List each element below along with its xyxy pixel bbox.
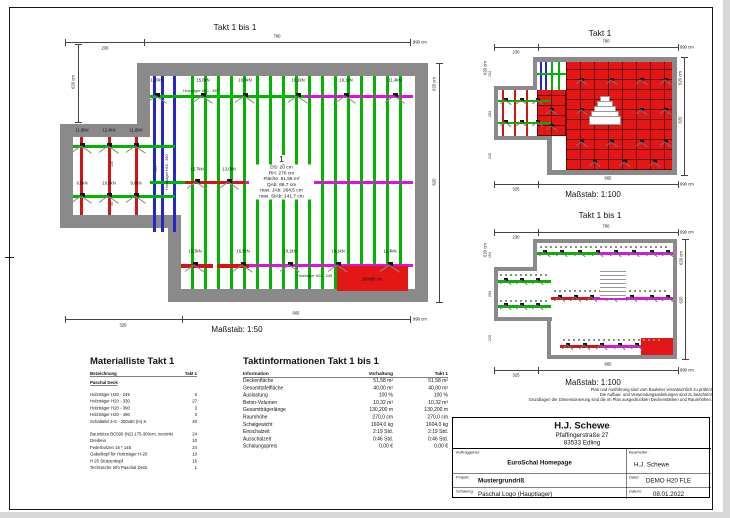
plan-sheet: { "colors":{"green":"#00b400","blue":"#2… (0, 0, 730, 518)
prop-symbol (618, 343, 622, 346)
prop-symbol (536, 98, 540, 101)
dim-tick (682, 239, 689, 240)
load-label: 19,1kN (331, 249, 344, 253)
micro-text-strip (500, 300, 550, 302)
dim-tick (494, 44, 495, 51)
info-cell: Schalgewicht (243, 421, 338, 428)
load-label: 15,3kN (188, 249, 201, 253)
load-label: 15,0kN (196, 78, 209, 82)
dim-tick (538, 229, 539, 236)
dim-label: 325 (513, 373, 520, 377)
field-label: Schalung: (456, 489, 474, 494)
dim-label: 230 (102, 46, 109, 50)
dim-tick (494, 181, 495, 188)
prop-symbol (520, 98, 524, 101)
scale-label: Maßstab: 1:100 (488, 378, 698, 387)
dim-label: 154 (154, 166, 158, 172)
info-cell: 100 % (393, 392, 448, 399)
beam (153, 76, 156, 232)
load-label: 16,9kN (236, 249, 249, 253)
prop-symbol (107, 143, 112, 147)
dim-tick (436, 302, 443, 303)
dim-tick (678, 229, 679, 236)
dim-label: 620 (432, 179, 436, 186)
table-header: InformationVorhaltungTakt 1 (243, 371, 448, 378)
dim-tick (75, 44, 82, 45)
prop-symbol (336, 262, 341, 266)
load-label: 19,1kN (339, 78, 352, 82)
material-qty: 27 (192, 398, 197, 405)
info-block: 1DS: 20 cmRH: 270 cmFläche: 51,58 m²QAb:… (249, 155, 314, 199)
info-cell: 0:46 Std. (393, 436, 448, 443)
prop-symbol (107, 193, 112, 197)
prop-symbol (550, 124, 554, 127)
info-row: Ausschalzeit0:46 Std.0:46 Std. (243, 436, 448, 443)
load-label: 11,6kN (76, 128, 89, 132)
prop-symbol (650, 295, 654, 298)
dim-line (439, 63, 440, 302)
prop-symbol (580, 78, 584, 81)
field-label: Projekt: (456, 475, 470, 480)
prop-symbol (195, 179, 200, 183)
info-cell: Raumhöhe (243, 414, 338, 421)
micro-text-strip (563, 339, 663, 341)
load-label: 11,4kN (389, 78, 402, 82)
material-name: Schaltafel 3-S - 200x50 (m) K (90, 418, 146, 425)
dim-label: 990 cm (680, 230, 694, 234)
dim-label: 90 (110, 202, 114, 206)
info-cell: Einschalzeit (243, 429, 338, 436)
beam (526, 90, 528, 136)
dim-label: 665 (605, 362, 612, 366)
info-cell: Gesamttafelfläche (243, 385, 338, 392)
material-name: H 20 Stützenkopf (90, 458, 123, 465)
prop-symbol (650, 250, 654, 253)
material-row: Baustütze BC500 (N2) 175-300cm, verzinkt… (90, 431, 197, 438)
load-label: 13,0kN (222, 167, 235, 171)
dim-label: 230 (513, 50, 520, 54)
info-cell: 270,0 cm (338, 414, 393, 421)
wall (533, 239, 677, 243)
prop-symbol (664, 108, 668, 111)
dim-line (494, 232, 678, 233)
wall (494, 86, 498, 140)
prop-symbol (504, 303, 508, 306)
wall (533, 239, 537, 271)
prop-symbol (193, 262, 198, 266)
column-header: Takt 1 (185, 371, 197, 377)
prop-symbol (635, 343, 639, 346)
prop-symbol (536, 120, 540, 123)
prop-symbol (580, 140, 584, 143)
dim-label: 220 (488, 335, 492, 341)
material-qty: 3 (195, 412, 197, 419)
dim-label: 990 cm (680, 45, 694, 49)
dim-label: 760 (603, 39, 610, 43)
dim-line (65, 319, 410, 320)
dim-tick (436, 63, 443, 64)
field-value: Mustergrundriß (478, 477, 524, 484)
prop-symbol (558, 295, 562, 298)
prop-symbol (664, 140, 668, 143)
field-value: 08.01.2022 (626, 491, 711, 498)
dim-label: 230 (513, 235, 520, 239)
dim-tick (682, 359, 689, 360)
beam (173, 76, 176, 232)
dim-label: 760 (274, 34, 281, 38)
beam (558, 62, 560, 90)
info-row: Raumhöhe270,0 cm270,0 cm (243, 414, 448, 421)
wall (547, 355, 677, 359)
company-city: 83533 Edling (453, 439, 711, 446)
micro-text-strip (540, 246, 670, 248)
prop-symbol (520, 303, 524, 306)
material-name: Holzträger H20 - 330 (90, 398, 130, 405)
info-row: Gesamtträgerlänge130,200 m130,200 m (243, 407, 448, 414)
material-name: Technische Info Paschal Deck (90, 465, 147, 472)
prop-symbol (155, 93, 160, 97)
scale-label: Maßstab: 1:50 (55, 325, 419, 334)
beam (502, 90, 504, 136)
material-name: Holzträger H20 - 490 (90, 412, 130, 419)
beam (551, 62, 553, 90)
beam-label: Holzträger H20 - 390 (165, 154, 169, 189)
field-value: DEMO H20 FLE (626, 477, 711, 484)
info-cell: 0:46 Std. (338, 436, 393, 443)
load-label: 11,6kN (130, 128, 143, 132)
info-row: Schalgewicht1604,0 kg1604,0 kg (243, 421, 448, 428)
prop-symbol (504, 278, 508, 281)
info-row: Einschalzeit2:19 Std.2:19 Std. (243, 429, 448, 436)
material-qty: 10 (192, 451, 197, 458)
dim-label: 665 (605, 176, 612, 180)
stack-symbol (589, 116, 621, 125)
joist-line (73, 195, 175, 198)
prop-symbol (640, 108, 644, 111)
beam-label: Holzträger H20 - 245 (297, 274, 332, 278)
prop-symbol (653, 160, 657, 163)
load-label: 16,9kN (238, 78, 251, 82)
info-row: Beton-Volumen10,32 m³10,32 m³ (243, 399, 448, 406)
info-cell: Gesamtträgerlänge (243, 407, 338, 414)
dim-tick (182, 316, 183, 323)
prop-symbol (560, 250, 564, 253)
table-header: BezeichnungTakt 1 (90, 371, 197, 378)
joist-line (150, 95, 305, 98)
wall (494, 267, 498, 321)
load-label: 11,4kN (384, 249, 397, 253)
dim-line (78, 44, 79, 122)
beam-label: Holzträger H20 - 330 (183, 89, 218, 93)
wall (137, 63, 428, 76)
dim-line (684, 57, 685, 175)
dim-label: 990 cm (413, 317, 427, 321)
dim-label: 620 (678, 117, 682, 124)
prop-symbol (504, 98, 508, 101)
dim-label: 990 cm (413, 40, 427, 44)
prop-symbol (550, 108, 554, 111)
dim-line (494, 47, 678, 48)
wall (547, 170, 677, 175)
plan-title: Takt 1 bis 1 (55, 22, 415, 32)
info-row: Gesamttafelfläche40,00 m²40,00 m² (243, 385, 448, 392)
column-header: Information (243, 371, 338, 377)
prop-symbol (583, 343, 587, 346)
material-qty: 6 (195, 392, 197, 399)
material-row: Dreibein10 (90, 438, 197, 445)
dim-label: 325 (513, 187, 520, 191)
prop-symbol (574, 295, 578, 298)
dim-label: 990 cm (680, 368, 694, 372)
dim-label: 154 (488, 252, 492, 258)
wall (494, 267, 537, 271)
prop-symbol (80, 143, 85, 147)
dim-tick (75, 122, 82, 123)
prop-symbol (520, 120, 524, 123)
company-name: H.J. Schewe (453, 421, 711, 432)
load-label: 10,0kN (102, 181, 115, 185)
info-cell: 10,32 m³ (393, 399, 448, 406)
info-cell: 10,32 m³ (338, 399, 393, 406)
prop-symbol (543, 250, 547, 253)
material-name: Gabelkopf für Holzträger H-20 (90, 451, 147, 458)
info-block-small (598, 268, 628, 300)
prop-symbol (640, 78, 644, 81)
info-cell: 130,200 m (393, 407, 448, 414)
dim-tick (538, 44, 539, 51)
dim-label: 620 cm (678, 71, 682, 85)
plan-overview: Takt 1 bis 1 Maßstab: 1:100 230760990 cm… (488, 208, 728, 398)
dim-tick (65, 316, 66, 323)
dim-tick (410, 39, 411, 46)
prop-symbol (580, 108, 584, 111)
dim-label: 620 (679, 297, 683, 304)
plan-title: Takt 1 (488, 28, 712, 38)
beam (80, 137, 83, 215)
prop-symbol (288, 262, 293, 266)
prop-symbol (536, 278, 540, 281)
wall (547, 136, 552, 175)
prop-symbol (504, 120, 508, 123)
dim-label: 620 cm (679, 251, 683, 265)
divider (453, 448, 711, 449)
wall (494, 317, 552, 321)
info-cell: 40,00 m² (393, 385, 448, 392)
column-header: Vorhaltung (338, 371, 393, 377)
prop-symbol (623, 160, 627, 163)
material-qty: 16 (192, 458, 197, 465)
load-label: 19,1kN (283, 249, 296, 253)
prop-symbol (600, 343, 604, 346)
micro-text-strip (500, 274, 550, 276)
wall (672, 57, 677, 175)
field-value: Paschal Logo (Hauptlager) (478, 491, 552, 498)
takt-number: 1 (276, 155, 287, 164)
info-cell: 130,200 m (338, 407, 393, 414)
material-row: H 20 Stützenkopf16 (90, 458, 197, 465)
title-block: H.J. SchewePfaffingerstraße 2783533 Edli… (452, 417, 710, 498)
dim-line (494, 184, 678, 185)
dim-tick (538, 181, 539, 188)
load-label: 9,6kN (131, 181, 142, 185)
info-cell: 270,0 cm (393, 414, 448, 421)
dim-label: 620 cm (432, 77, 436, 91)
prop-symbol (666, 295, 670, 298)
fold-mark (5, 257, 14, 258)
material-name: Holzträger H20 - 390 (90, 405, 130, 412)
material-row: Holzträger H20 - 2456 (90, 392, 197, 399)
company-street: Pfaffingerstraße 27 (453, 432, 711, 439)
info-cell: Schalungspreis (243, 443, 338, 450)
info-cell: 1604,0 kg (338, 421, 393, 428)
field-value: H.J. Schewe (634, 461, 669, 468)
field-label: Bearbeiter: (629, 450, 649, 455)
prop-symbol (243, 93, 248, 97)
info-cell: 2:19 Std. (338, 429, 393, 436)
info-cell: 51,58 m² (338, 378, 393, 385)
material-name: Holzträger H20 - 245 (90, 392, 130, 399)
prop-symbol (393, 93, 398, 97)
dim-label: 325 (120, 323, 127, 327)
info-cell: 100 % (338, 392, 393, 399)
dim-tick (681, 175, 688, 176)
beam (540, 62, 542, 90)
joist-line (73, 145, 175, 148)
info-line: max. StAb: 141,7 cm (249, 193, 314, 199)
info-cell: 0,00 € (338, 443, 393, 450)
group-label: Paschal Deck (90, 380, 118, 386)
joist-line (537, 73, 566, 75)
info-cell: Beton-Volumen (243, 399, 338, 406)
prop-symbol (520, 278, 524, 281)
material-qty: 40 (192, 418, 197, 425)
material-name: Federbolzen 16 * 145 (90, 444, 131, 451)
material-qty: 10 (192, 438, 197, 445)
material-row: Holzträger H20 - 3903 (90, 405, 197, 412)
dim-label: 220 (488, 153, 492, 159)
prop-symbol (134, 193, 139, 197)
prop-symbol (666, 250, 670, 253)
material-qty: 3 (195, 405, 197, 412)
dim-label: 990 cm (680, 182, 694, 186)
column-header: Takt 1 (393, 371, 448, 377)
table-title: Taktinformationen Takt 1 bis 1 (243, 356, 448, 367)
load-label: 19,1kN (291, 78, 304, 82)
divider (453, 473, 711, 474)
prop-symbol (296, 93, 301, 97)
dim-tick (678, 367, 679, 374)
dim-line (494, 370, 678, 371)
load-label: 9,6kN (77, 181, 88, 185)
material-qty: 1 (195, 465, 197, 472)
info-cell: Ausschalzeit (243, 436, 338, 443)
prop-symbol (640, 140, 644, 143)
info-cell: Auslastung (243, 392, 338, 399)
info-cell: 0,00 € (393, 443, 448, 450)
prop-symbol (610, 140, 614, 143)
dim-label: 620 cm (483, 61, 487, 75)
dim-tick (65, 39, 66, 46)
wall (60, 215, 168, 228)
prop-symbol (578, 250, 582, 253)
load-label: 13,0kN (150, 78, 163, 82)
field-label: Auftraggeber: (456, 450, 480, 455)
material-row: Gabelkopf für Holzträger H-2010 (90, 451, 197, 458)
column-header: Bezeichnung (90, 371, 117, 377)
prop-symbol (134, 143, 139, 147)
plan-main: Takt 1 bis 1 Maßstab: 1:50 230760990 cm3… (55, 22, 459, 344)
field-value: EuroSchal Homepage (453, 459, 626, 466)
prop-symbol (630, 295, 634, 298)
prop-symbol (241, 262, 246, 266)
panel-label: 200x50 cm (362, 277, 382, 281)
beam (545, 62, 547, 90)
info-cell: 1604,0 kg (393, 421, 448, 428)
dim-tick (410, 316, 411, 323)
dim-tick (144, 39, 145, 46)
load-label: 15,7kN (190, 167, 203, 171)
info-row: Auslastung100 %100 % (243, 392, 448, 399)
dim-label: 154 (488, 71, 492, 77)
info-cell: 51,58 m² (393, 378, 448, 385)
dim-label: 760 (603, 224, 610, 228)
material-row: Holzträger H20 - 4903 (90, 412, 197, 419)
prop-symbol (590, 295, 594, 298)
dim-tick (494, 367, 495, 374)
plan-title: Takt 1 bis 1 (488, 210, 712, 220)
dim-tick (681, 57, 688, 58)
prop-symbol (593, 160, 597, 163)
material-qty: 24 (192, 444, 197, 451)
dim-label: 620 cm (71, 75, 75, 89)
info-cell: 2:19 Std. (393, 429, 448, 436)
dim-tick (678, 44, 679, 51)
info-cell: Deckenfläche (243, 378, 338, 385)
wall (547, 317, 551, 359)
prop-symbol (344, 93, 349, 97)
prop-symbol (610, 78, 614, 81)
beam (514, 90, 516, 136)
dim-label: 283 (488, 111, 492, 117)
hatch-area (537, 90, 566, 136)
prop-symbol (227, 179, 232, 183)
dim-label: 620 cm (483, 243, 487, 257)
wall (494, 136, 552, 140)
plan-takt1: Takt 1 Maßstab: 1:100 230760990 cm325665… (488, 28, 728, 206)
prop-symbol (614, 250, 618, 253)
dim-line (65, 42, 410, 43)
material-qty: 24 (192, 431, 197, 438)
info-row: Deckenfläche51,58 m²51,58 m² (243, 378, 448, 385)
divider (453, 487, 711, 488)
dim-line (685, 239, 686, 359)
prop-symbol (80, 193, 85, 197)
info-cell: 40,00 m² (338, 385, 393, 392)
material-row: Schaltafel 3-S - 200x50 (m) K40 (90, 418, 197, 425)
material-row: Federbolzen 16 * 14524 (90, 444, 197, 451)
material-row: Technische Info Paschal Deck1 (90, 465, 197, 472)
info-row: Schalungspreis0,00 €0,00 € (243, 443, 448, 450)
dim-tick (494, 229, 495, 236)
load-label: 12,4kN (102, 128, 115, 132)
prop-symbol (536, 303, 540, 306)
material-name: Baustütze BC500 (N2) 175-300cm, verzinkt (90, 431, 173, 438)
wall (415, 63, 428, 302)
prop-symbol (664, 78, 668, 81)
prop-symbol (632, 250, 636, 253)
dim-tick (538, 367, 539, 374)
dim-label: 283 (488, 291, 492, 297)
